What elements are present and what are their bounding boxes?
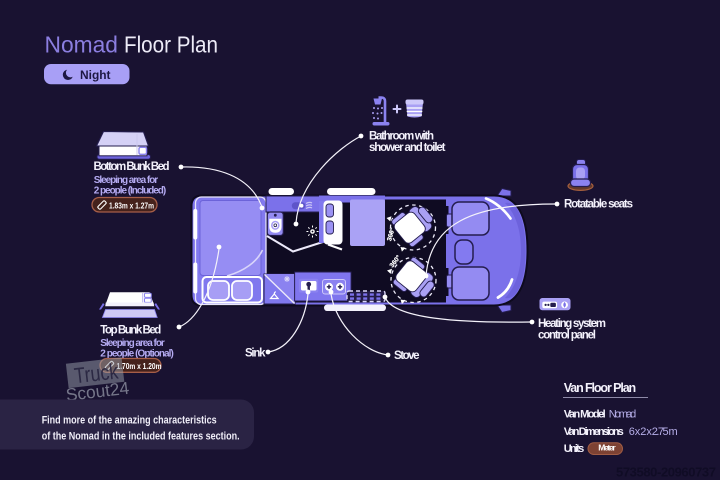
svg-text:of the Nomad in the included f: of the Nomad in the included features se… xyxy=(42,431,240,443)
svg-text:Heating system: Heating system xyxy=(538,318,606,330)
svg-text:Floor Plan: Floor Plan xyxy=(124,32,218,58)
svg-text:Top Bunk Bed: Top Bunk Bed xyxy=(100,325,161,337)
svg-text:6 x 2 x 2.75 m: 6 x 2 x 2.75 m xyxy=(629,426,678,438)
svg-text:Sink: Sink xyxy=(245,348,266,360)
svg-text:Bathroom with: Bathroom with xyxy=(369,131,434,143)
svg-text:Van Floor Plan: Van Floor Plan xyxy=(564,381,637,395)
svg-text:2 people (Included): 2 people (Included) xyxy=(94,186,167,197)
svg-text:Nomad: Nomad xyxy=(609,409,637,421)
svg-text:Nomad: Nomad xyxy=(45,32,119,58)
svg-text:Units: Units xyxy=(564,443,585,455)
svg-text:Sleeping area for: Sleeping area for xyxy=(100,338,165,349)
svg-text:1.70m x 1.20m: 1.70m x 1.20m xyxy=(117,361,162,371)
svg-text:Sleeping area for: Sleeping area for xyxy=(94,175,159,186)
svg-text:Rotatable seats: Rotatable seats xyxy=(564,199,633,211)
svg-text:control panel: control panel xyxy=(538,330,596,342)
svg-text:1.83m x 1.27m: 1.83m x 1.27m xyxy=(109,200,154,210)
svg-text:Night: Night xyxy=(80,68,111,82)
svg-text:shower and toilet: shower and toilet xyxy=(369,142,446,154)
svg-text:Van Dimensions: Van Dimensions xyxy=(564,426,624,438)
svg-text:Find more of the amazing chara: Find more of the amazing characteristics xyxy=(42,415,217,427)
svg-text:Meter: Meter xyxy=(598,443,616,453)
svg-text:573580-20960737: 573580-20960737 xyxy=(616,465,716,480)
svg-text:Stove: Stove xyxy=(394,350,420,362)
svg-text:Van Model: Van Model xyxy=(564,409,606,421)
svg-text:Bottom Bunk Bed: Bottom Bunk Bed xyxy=(94,161,170,173)
